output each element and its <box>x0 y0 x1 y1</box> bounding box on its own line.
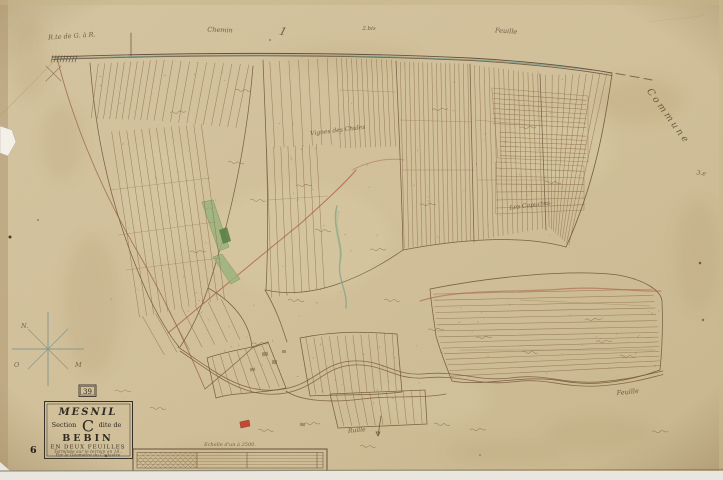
scan-backdrop <box>0 471 723 480</box>
cadastral-map-scan: N.OM 39 MESNIL C Section dite de BEBIN E… <box>0 0 723 480</box>
vignette <box>0 0 723 480</box>
left-edge-shade <box>0 0 8 471</box>
top-edge-shade <box>0 0 723 5</box>
cadastral-map-canvas: N.OM 39 MESNIL C Section dite de BEBIN E… <box>0 0 723 480</box>
right-edge-shade <box>719 0 723 471</box>
